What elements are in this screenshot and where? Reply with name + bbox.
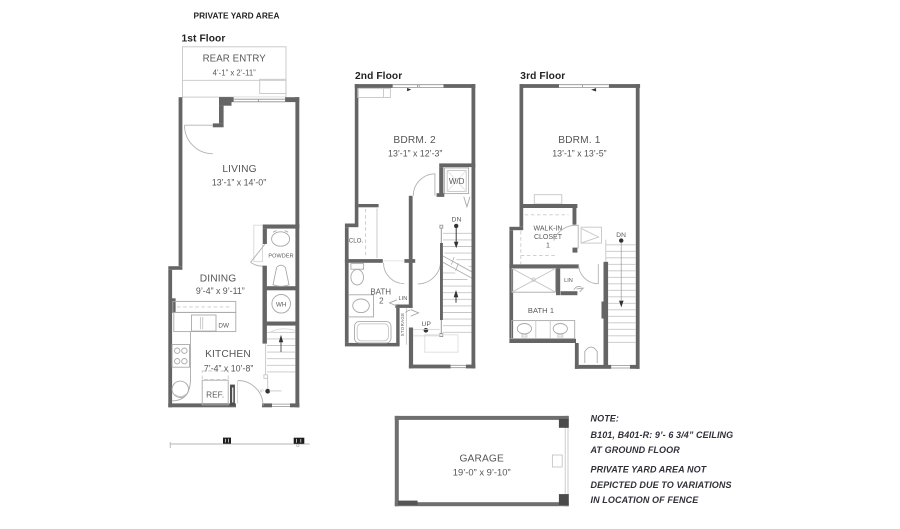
svg-text:WALK-IN: WALK-IN: [534, 226, 563, 233]
svg-text:REF.: REF.: [206, 390, 224, 399]
svg-text:CLOSET: CLOSET: [534, 234, 563, 241]
svg-text:AT GROUND FLOOR: AT GROUND FLOOR: [590, 445, 681, 455]
svg-text:W/D: W/D: [449, 177, 465, 186]
svg-text:DW: DW: [218, 323, 230, 330]
svg-text:BDRM. 1: BDRM. 1: [558, 135, 601, 146]
svg-text:KITCHEN: KITCHEN: [205, 349, 251, 360]
svg-text:WH: WH: [276, 301, 286, 308]
svg-text:CLO.: CLO.: [349, 237, 364, 244]
svg-text:UP: UP: [258, 389, 264, 394]
svg-text:BATH: BATH: [370, 287, 391, 296]
svg-text:1st Floor: 1st Floor: [182, 34, 226, 45]
svg-text:DINING: DINING: [200, 273, 237, 284]
svg-text:2nd Floor: 2nd Floor: [355, 71, 402, 82]
svg-text:BDRM. 2: BDRM. 2: [393, 135, 436, 146]
svg-text:7’-4” x 10’-8”: 7’-4” x 10’-8”: [204, 363, 253, 373]
svg-text:2: 2: [379, 296, 384, 305]
svg-text:13’-1” x 14’-0”: 13’-1” x 14’-0”: [212, 178, 266, 188]
svg-text:13’-1” x 12’-3”: 13’-1” x 12’-3”: [388, 149, 442, 159]
svg-text:POWDER: POWDER: [268, 253, 293, 259]
svg-text:LIN: LIN: [399, 296, 408, 302]
svg-text:9’-4” x 9’-11”: 9’-4” x 9’-11”: [196, 286, 245, 296]
svg-text:3rd Floor: 3rd Floor: [520, 71, 565, 82]
svg-text:B101, B401-R: 9’- 6 3/4” CEILI: B101, B401-R: 9’- 6 3/4” CEILING: [591, 430, 734, 440]
svg-text:GARAGE: GARAGE: [459, 454, 504, 465]
svg-text:STORAGE: STORAGE: [400, 313, 405, 337]
svg-text:DN: DN: [452, 216, 462, 223]
svg-text:DEPICTED DUE TO VARIATIONS: DEPICTED DUE TO VARIATIONS: [591, 480, 732, 490]
svg-text:13’-1” x 13’-5”: 13’-1” x 13’-5”: [552, 149, 606, 159]
svg-text:UP: UP: [422, 321, 432, 328]
svg-text:PRIVATE YARD AREA: PRIVATE YARD AREA: [194, 11, 280, 21]
svg-text:PRIVATE YARD AREA NOT: PRIVATE YARD AREA NOT: [591, 465, 708, 475]
svg-text:NOTE:: NOTE:: [591, 414, 620, 424]
svg-text:1: 1: [546, 243, 550, 250]
svg-text:IN LOCATION OF FENCE: IN LOCATION OF FENCE: [591, 495, 700, 505]
svg-text:4’-1” x 2’-11”: 4’-1” x 2’-11”: [213, 68, 257, 77]
svg-text:LIVING: LIVING: [222, 164, 256, 175]
svg-text:BATH 1: BATH 1: [528, 306, 554, 315]
svg-text:REAR ENTRY: REAR ENTRY: [203, 54, 267, 65]
svg-text:LIN: LIN: [564, 278, 573, 284]
svg-text:19’-0” x 9’-10”: 19’-0” x 9’-10”: [453, 467, 511, 478]
svg-text:DN: DN: [616, 232, 626, 239]
